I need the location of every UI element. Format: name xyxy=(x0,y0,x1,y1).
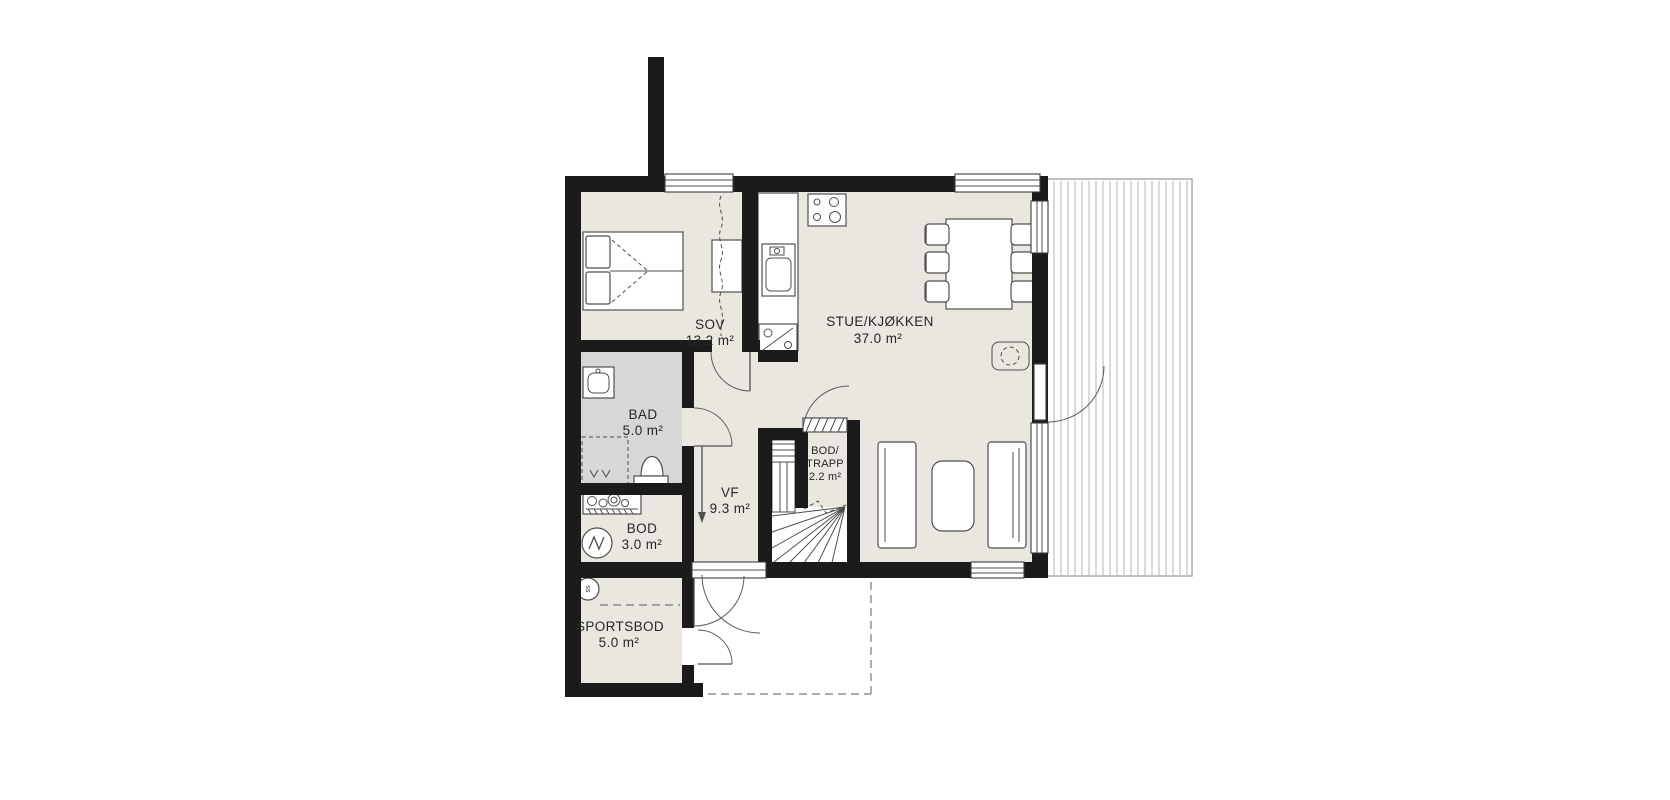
chair xyxy=(925,281,949,302)
room-label-bod-trapp: BOD/ xyxy=(811,446,839,457)
room-area-sov: 13.2 m² xyxy=(686,334,735,348)
deck xyxy=(1048,179,1192,576)
room-area-bod-trapp: 2.2 m² xyxy=(809,472,841,483)
sofa xyxy=(988,442,1026,548)
bathroom-wall-right xyxy=(682,352,694,408)
door-swing-arc xyxy=(698,630,732,664)
room-label-stue: STUE/KJØKKEN xyxy=(826,315,934,329)
wardrobe xyxy=(712,240,742,292)
door-swing-arc xyxy=(694,576,744,626)
dishwasher xyxy=(759,324,797,352)
bedroom-kitchen-wall xyxy=(742,192,758,352)
room-label-bod: BOD xyxy=(627,522,657,536)
room-area-bod: 3.0 m² xyxy=(622,538,663,552)
exterior-wall-stub xyxy=(648,57,664,176)
room-label-sportsbod: SPORTSBOD xyxy=(576,620,664,634)
room-label-bod-trapp2: TRAPP xyxy=(806,459,844,470)
deck-surface xyxy=(1048,179,1192,576)
chair xyxy=(925,252,949,273)
door-swing-arc xyxy=(702,575,760,633)
stair-closet-wall xyxy=(795,440,808,508)
room-area-stue: 37.0 m² xyxy=(854,332,903,346)
dining-set xyxy=(925,219,1035,309)
chair xyxy=(1011,252,1035,273)
window xyxy=(955,174,1040,192)
dining-table xyxy=(946,219,1012,309)
coffee-table xyxy=(932,461,974,531)
counter-end-wall xyxy=(758,350,798,362)
utility-circle-label: ss xyxy=(585,585,592,593)
sofa xyxy=(878,442,916,548)
bathroom-bod-wall-right xyxy=(682,446,694,562)
window xyxy=(971,562,1024,578)
exterior-wall-left xyxy=(565,176,581,578)
floor-plan-drawing: ss xyxy=(0,0,1670,800)
chair xyxy=(1011,281,1035,302)
terrace-door-leaf xyxy=(1034,364,1046,420)
window xyxy=(665,174,733,192)
room-area-sportsbod: 5.0 m² xyxy=(599,636,640,650)
room-label-sov: SOV xyxy=(695,318,725,332)
stair-wall-left xyxy=(758,428,772,578)
window xyxy=(1031,423,1048,553)
bathroom-wall-bottom xyxy=(581,483,694,495)
room-area-vf: 9.3 m² xyxy=(710,502,751,516)
room-label-bad: BAD xyxy=(629,408,658,422)
closet-stue-wall xyxy=(847,420,860,578)
sportsbod-wall-left xyxy=(565,578,581,697)
sportsbod-wall-right xyxy=(682,578,694,628)
room-label-vf: VF xyxy=(721,486,739,500)
stair-flight-floor xyxy=(772,440,795,512)
pillow xyxy=(586,272,610,304)
pillow xyxy=(586,236,610,268)
window xyxy=(1031,201,1048,253)
laundry-counter xyxy=(583,492,641,514)
sportsbod-wall-right xyxy=(682,665,694,683)
chair xyxy=(925,224,949,245)
floor-plan: ss xyxy=(0,0,1670,800)
sportsbod-wall-bottom xyxy=(565,683,703,697)
stair-wall-top xyxy=(758,428,808,440)
room-area-bad: 5.0 m² xyxy=(623,424,664,438)
cooktop xyxy=(808,194,846,226)
